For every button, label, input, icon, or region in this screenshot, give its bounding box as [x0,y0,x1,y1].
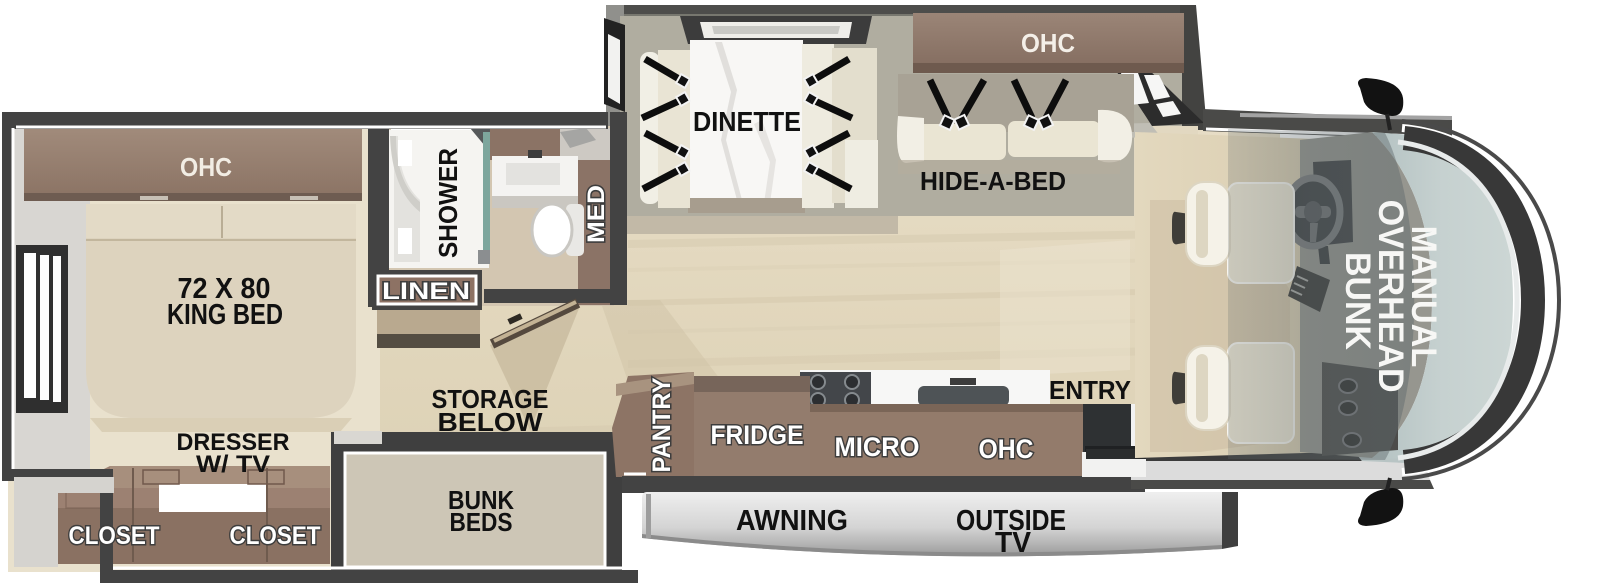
svg-text:MED: MED [583,185,610,243]
svg-text:AWNING: AWNING [736,505,848,537]
svg-text:KING BED: KING BED [167,299,283,331]
svg-text:OHC: OHC [979,434,1034,464]
svg-text:CLOSET: CLOSET [69,522,160,550]
svg-text:PANTRY: PANTRY [648,377,676,472]
svg-text:OHC: OHC [180,152,232,182]
svg-text:W/ TV: W/ TV [196,451,270,478]
svg-text:BEDS: BEDS [450,507,513,537]
svg-text:CLOSET: CLOSET [230,522,321,550]
svg-text:TV: TV [995,527,1032,559]
svg-text:ENTRY: ENTRY [1049,375,1131,405]
svg-text:HIDE-A-BED: HIDE-A-BED [920,166,1066,196]
svg-text:LINEN: LINEN [382,278,470,305]
svg-text:MICRO: MICRO [835,432,920,462]
svg-text:FRIDGE: FRIDGE [711,420,804,450]
svg-text:DINETTE: DINETTE [693,106,801,137]
svg-text:SHOWER: SHOWER [433,148,463,258]
svg-text:OHC: OHC [1021,28,1075,58]
